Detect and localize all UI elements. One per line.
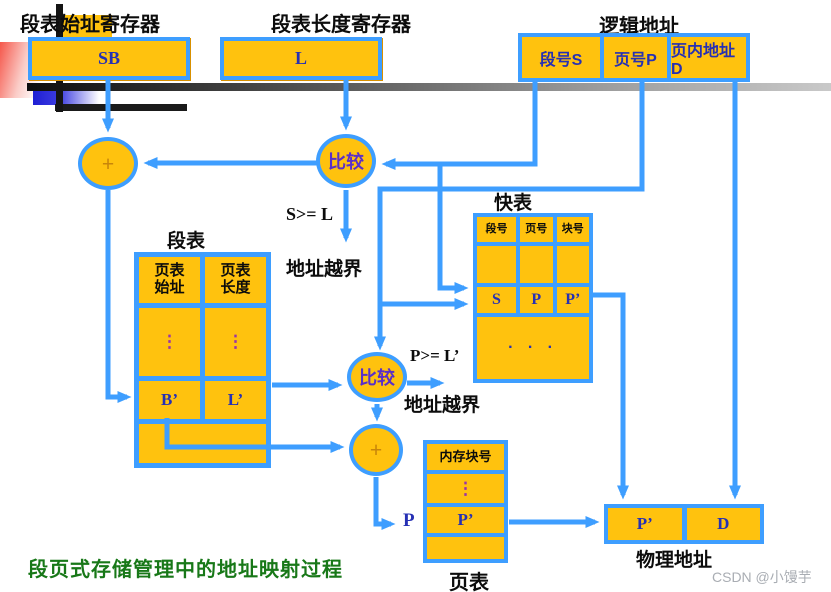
page-table: 内存块号 ⋮ P’ xyxy=(423,440,508,563)
register-sb-box: SB xyxy=(28,37,190,80)
adder-circle-2: + xyxy=(349,424,403,476)
register-l-value: L xyxy=(295,48,307,69)
segment-table-header-page-table-length: 页表长度 xyxy=(205,257,266,303)
adder-circle-1: + xyxy=(78,137,138,190)
tlb-header-page: 页号 xyxy=(520,217,553,242)
line-tlb-to-physical xyxy=(593,295,623,495)
segment-table-ellipsis-left: ⋮ xyxy=(139,308,200,376)
tlb-value-s: S xyxy=(477,287,516,313)
segment-table-header-page-table-start: 页表始址 xyxy=(139,257,200,303)
segment-table: 页表始址 页表长度 ⋮ ⋮ B’ L’ xyxy=(134,252,271,468)
page-table-header-memory-block: 内存块号 xyxy=(427,444,504,470)
decor-black-bar xyxy=(55,104,187,111)
register-sb-value: SB xyxy=(98,48,120,69)
diagram-stage: 段表始址寄存器 段表长度寄存器 逻辑地址 快表 段表 页表 物理地址 SB L … xyxy=(0,0,831,592)
page-table-value-pprime: P’ xyxy=(427,507,504,533)
tlb-empty-cell xyxy=(557,246,590,283)
line-segment-number-to-compare1 xyxy=(386,82,535,164)
logical-cell-offset: 页内地址D xyxy=(671,37,746,78)
segment-table-value-b: B’ xyxy=(139,381,200,419)
condition-p-ge-lprime: P>= L’ xyxy=(410,346,459,366)
tlb-value-pprime: P’ xyxy=(557,287,590,313)
page-table-ellipsis: ⋮ xyxy=(427,474,504,503)
decor-horizontal-rule xyxy=(27,83,831,91)
compare-circle-1: 比较 xyxy=(316,134,376,188)
tlb-empty-cell xyxy=(520,246,553,283)
tlb-table: 段号 页号 块号 S P P’ · · · xyxy=(473,213,593,383)
title-tlb: 快表 xyxy=(494,188,532,215)
tlb-dots-row: · · · xyxy=(477,317,589,379)
register-l-box: L xyxy=(220,37,382,80)
tlb-empty-cell xyxy=(477,246,516,283)
line-segment-number-to-tlb xyxy=(440,164,464,288)
segment-table-bottom-row xyxy=(139,424,266,463)
tlb-value-p: P xyxy=(520,287,553,313)
logical-address-box: 段号S 页号P 页内地址D xyxy=(518,33,750,82)
watermark-csdn: CSDN @小馒芋 xyxy=(712,567,812,587)
tlb-header-block: 块号 xyxy=(557,217,590,242)
title-segment-table: 段表 xyxy=(167,226,205,253)
title-physical-address: 物理地址 xyxy=(636,545,712,572)
segment-table-ellipsis-right: ⋮ xyxy=(205,308,266,376)
label-address-out-of-bounds-1: 地址越界 xyxy=(286,254,362,281)
page-table-bottom-row xyxy=(427,537,504,559)
segment-table-value-l: L’ xyxy=(205,381,266,419)
logical-cell-segment-number: 段号S xyxy=(522,37,600,78)
line-plus1-to-segment-table xyxy=(108,190,127,397)
title-page-table: 页表 xyxy=(449,566,489,592)
line-plus2-to-page-table xyxy=(376,477,391,524)
physical-address-box: P’ D xyxy=(604,504,764,544)
logical-cell-page-number: 页号P xyxy=(604,37,667,78)
physical-cell-pprime: P’ xyxy=(608,508,682,540)
title-segment-table-length-register: 段表长度寄存器 xyxy=(271,8,411,37)
physical-cell-d: D xyxy=(687,508,761,540)
title-segment-table-start-register: 段表始址寄存器 xyxy=(20,8,160,37)
condition-s-ge-l: S>= L xyxy=(286,204,333,225)
label-p: P xyxy=(403,510,415,532)
tlb-header-segment: 段号 xyxy=(477,217,516,242)
label-address-out-of-bounds-2: 地址越界 xyxy=(404,390,480,417)
caption-address-mapping-process: 段页式存储管理中的地址映射过程 xyxy=(28,553,343,582)
compare-circle-2: 比较 xyxy=(347,352,407,402)
